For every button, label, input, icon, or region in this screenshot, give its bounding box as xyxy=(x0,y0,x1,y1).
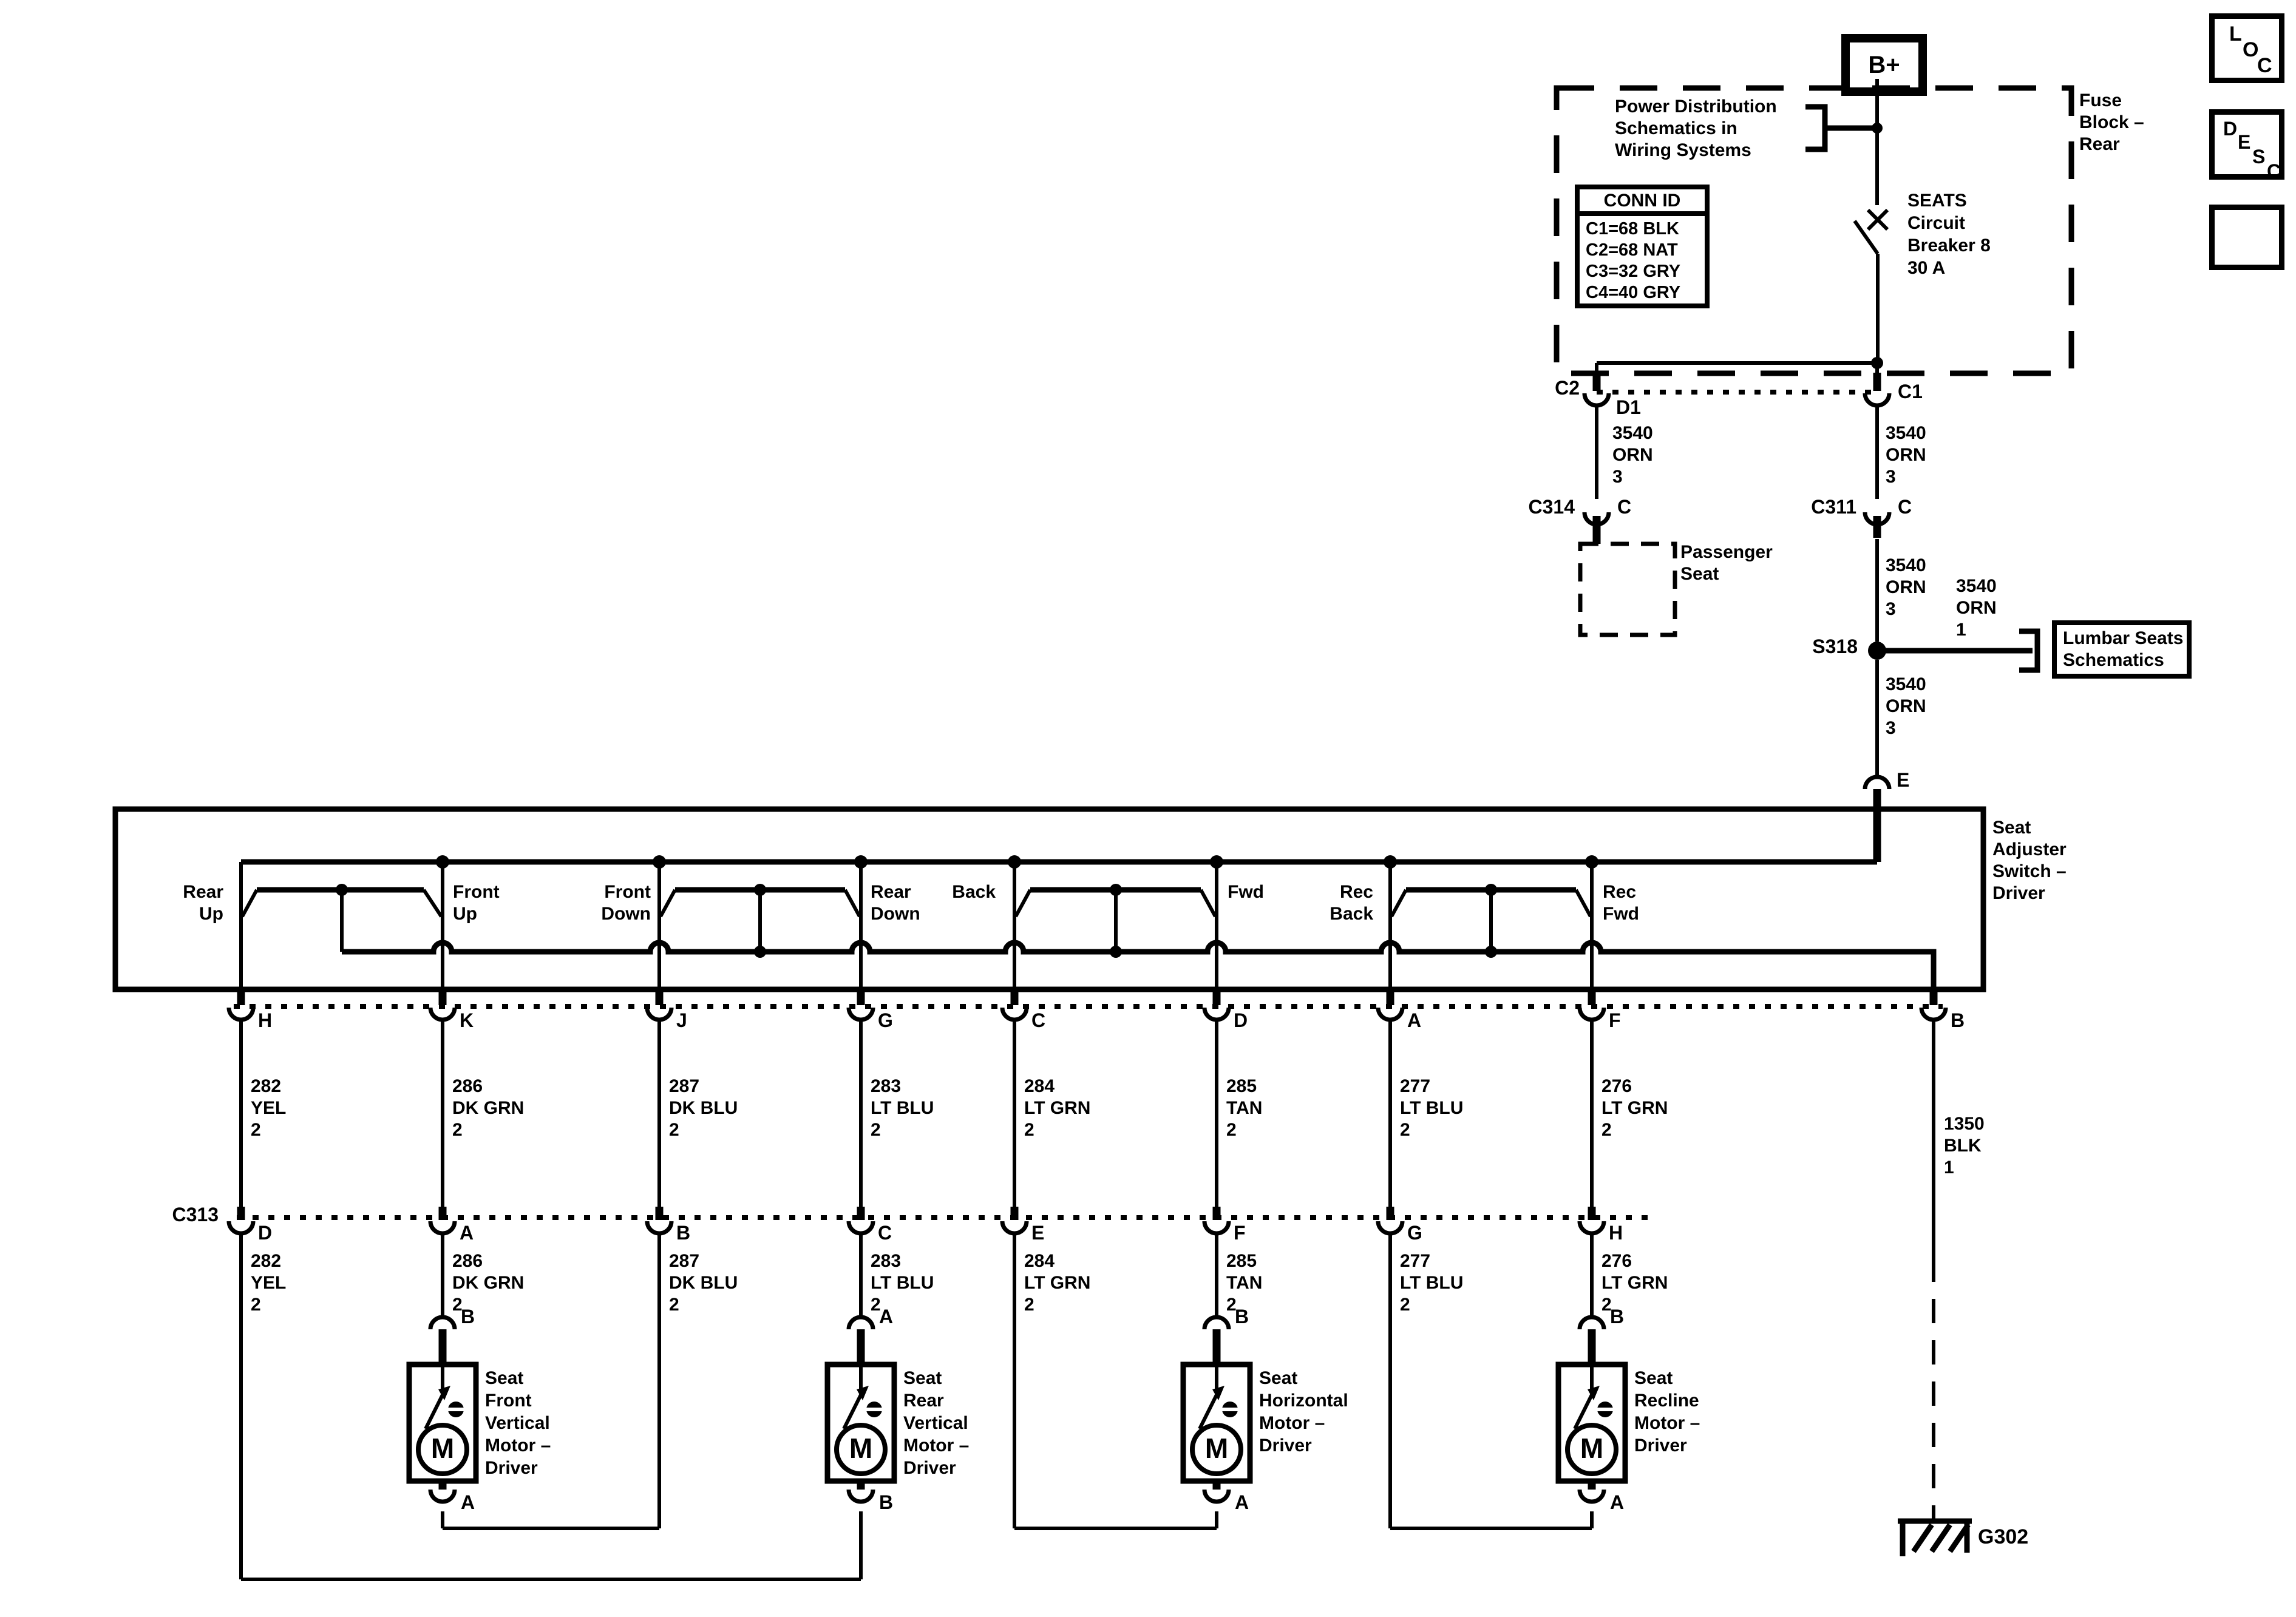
wire-label-3540-orn-c2: 3540 ORN 3 xyxy=(1612,422,1653,488)
loc-letter: O xyxy=(2243,39,2258,60)
loc-letter: C xyxy=(2257,55,2272,76)
switch-pin-d: D xyxy=(1234,1010,1248,1031)
conn-id-rows: C1=68 BLK C2=68 NAT C3=32 GRY C4=40 GRY xyxy=(1586,219,1680,303)
wire-label-3540-orn-lumbar: 3540 ORN 1 xyxy=(1956,575,1997,641)
wire-label-287-dkblu: 287 DK BLU 2 xyxy=(669,1076,738,1141)
c313-pin-d: D xyxy=(258,1222,272,1243)
motor1-bottom-pin: A xyxy=(461,1492,475,1513)
switch-pin-a: A xyxy=(1407,1010,1421,1031)
switch-pos-rear-down: Rear Down xyxy=(871,881,920,925)
switch-pos-rec-back: Rec Back xyxy=(1330,881,1373,925)
c313-pin-h: H xyxy=(1609,1222,1623,1243)
motor4-label: Seat Recline Motor – Driver xyxy=(1634,1367,1700,1457)
wire-label-284-ltgrn: 284 LT GRN 2 xyxy=(1024,1076,1090,1141)
wire-label-282-yel-2: 282 YEL 2 xyxy=(251,1250,286,1316)
lumbar-seats-schematics-label: Lumbar Seats Schematics xyxy=(2063,628,2183,671)
motor4-bottom-pin: A xyxy=(1610,1492,1624,1513)
circuit-breaker-label: SEATS Circuit Breaker 8 30 A xyxy=(1907,189,1991,279)
ground-g302-label: G302 xyxy=(1978,1526,2028,1548)
loc-letter: L xyxy=(2229,24,2242,44)
switch-pos-back: Back xyxy=(952,881,996,903)
seat-adjuster-switch-box xyxy=(115,809,1983,989)
motor1-top-pin: B xyxy=(461,1306,475,1327)
switch-pin-h: H xyxy=(258,1010,272,1031)
switch-pin-f: F xyxy=(1609,1010,1621,1031)
battery-feed-box: B+ xyxy=(1841,34,1927,96)
connector-stubs xyxy=(241,373,1934,1490)
wire-label-276-ltgrn: 276 LT GRN 2 xyxy=(1601,1076,1668,1141)
motor3-m-symbol: M xyxy=(1203,1434,1230,1463)
switch-pos-rear-up: Rear Up xyxy=(183,881,223,925)
desc-letter: D xyxy=(2223,118,2237,139)
c313-pin-f: F xyxy=(1234,1222,1246,1243)
connector-c311: C311 xyxy=(1811,497,1856,517)
switch-pin-b: B xyxy=(1951,1010,1965,1031)
switch-pin-c: C xyxy=(1031,1010,1045,1031)
wire-label-3540-orn-low: 3540 ORN 3 xyxy=(1886,674,1926,739)
desc-letter: E xyxy=(2238,132,2250,152)
wire-label-286-dkgrn: 286 DK GRN 2 xyxy=(452,1076,524,1141)
wire-label-3540-orn-c1: 3540 ORN 3 xyxy=(1886,422,1926,488)
connector-c314: C314 xyxy=(1529,497,1575,517)
wire-label-3540-orn-mid: 3540 ORN 3 xyxy=(1886,555,1926,620)
switch-pin-k: K xyxy=(460,1010,474,1031)
motor-boxes xyxy=(409,1364,1625,1481)
wire-label-285-tan: 285 TAN 2 xyxy=(1226,1076,1262,1141)
c313-pin-c: C xyxy=(878,1222,892,1243)
wire-label-1350-blk: 1350 BLK 1 xyxy=(1944,1113,1985,1179)
motor3-bottom-pin: A xyxy=(1235,1492,1249,1513)
motor-circles xyxy=(418,1425,1616,1474)
motor4-top-pin: B xyxy=(1610,1306,1624,1327)
motor2-top-pin: A xyxy=(879,1306,893,1327)
wire-label-284-ltgrn-2: 284 LT GRN 2 xyxy=(1024,1250,1090,1316)
passenger-seat-dashed-box xyxy=(1580,544,1675,635)
wire-label-282-yel: 282 YEL 2 xyxy=(251,1076,286,1141)
passenger-seat-label: Passenger Seat xyxy=(1680,541,1773,585)
splice-s318: S318 xyxy=(1812,636,1858,657)
loc-icon[interactable]: L O C xyxy=(2209,13,2284,83)
conn-id-title: CONN ID xyxy=(1577,191,1707,211)
connector-e-pin: E xyxy=(1897,770,1909,790)
wire-label-283-ltblu: 283 LT BLU 2 xyxy=(871,1076,934,1141)
motor2-bottom-pin: B xyxy=(879,1492,893,1513)
next-page-button[interactable] xyxy=(2209,205,2284,270)
connector-c2-pin-d1: D1 xyxy=(1616,397,1641,418)
switch-pos-front-down: Front Down xyxy=(601,881,651,925)
thermal-breaker-icons xyxy=(447,1402,1614,1417)
motor3-top-pin: B xyxy=(1235,1306,1249,1327)
connector-c314-pin: C xyxy=(1617,497,1631,517)
switch-title: Seat Adjuster Switch – Driver xyxy=(1992,817,2067,904)
fuse-block-label: Fuse Block – Rear xyxy=(2079,90,2144,155)
motor-symbols xyxy=(409,1364,1625,1481)
connector-c311-pin: C xyxy=(1898,497,1912,517)
switch-pos-front-up: Front Up xyxy=(453,881,500,925)
motor2-m-symbol: M xyxy=(847,1434,874,1463)
motor2-label: Seat Rear Vertical Motor – Driver xyxy=(903,1367,969,1479)
desc-icon[interactable]: D E S C xyxy=(2209,109,2284,180)
switch-pin-g: G xyxy=(878,1010,893,1031)
blade-arrowheads xyxy=(438,1386,1600,1400)
switch-pos-rec-fwd: Rec Fwd xyxy=(1603,881,1639,925)
c313-pin-g: G xyxy=(1407,1222,1422,1243)
switch-pos-fwd: Fwd xyxy=(1228,881,1264,903)
wire-label-277-ltblu: 277 LT BLU 2 xyxy=(1400,1076,1463,1141)
wire-label-287-dkblu-2: 287 DK BLU 2 xyxy=(669,1250,738,1316)
connector-c1: C1 xyxy=(1898,381,1923,402)
connector-c313: C313 xyxy=(172,1204,219,1225)
wiring-diagram-page: L O C D E S C B+ Fuse Block – Rear Power… xyxy=(0,0,2296,1617)
motor1-label: Seat Front Vertical Motor – Driver xyxy=(485,1367,551,1479)
motor1-m-symbol: M xyxy=(429,1434,456,1463)
c313-pin-b: B xyxy=(676,1222,690,1243)
desc-letter: S xyxy=(2252,146,2265,167)
connector-c2: C2 xyxy=(1555,378,1580,398)
c313-pin-a: A xyxy=(460,1222,474,1243)
wire-label-277-ltblu-2: 277 LT BLU 2 xyxy=(1400,1250,1463,1316)
motor4-m-symbol: M xyxy=(1578,1434,1605,1463)
c313-pin-e: E xyxy=(1031,1222,1044,1243)
battery-feed-label: B+ xyxy=(1868,52,1900,79)
motor3-label: Seat Horizontal Motor – Driver xyxy=(1259,1367,1348,1457)
power-distribution-note: Power Distribution Schematics in Wiring … xyxy=(1615,96,1777,161)
desc-letter: C xyxy=(2267,161,2281,181)
switch-pin-j: J xyxy=(676,1010,687,1031)
bus-lines xyxy=(241,107,2037,1556)
